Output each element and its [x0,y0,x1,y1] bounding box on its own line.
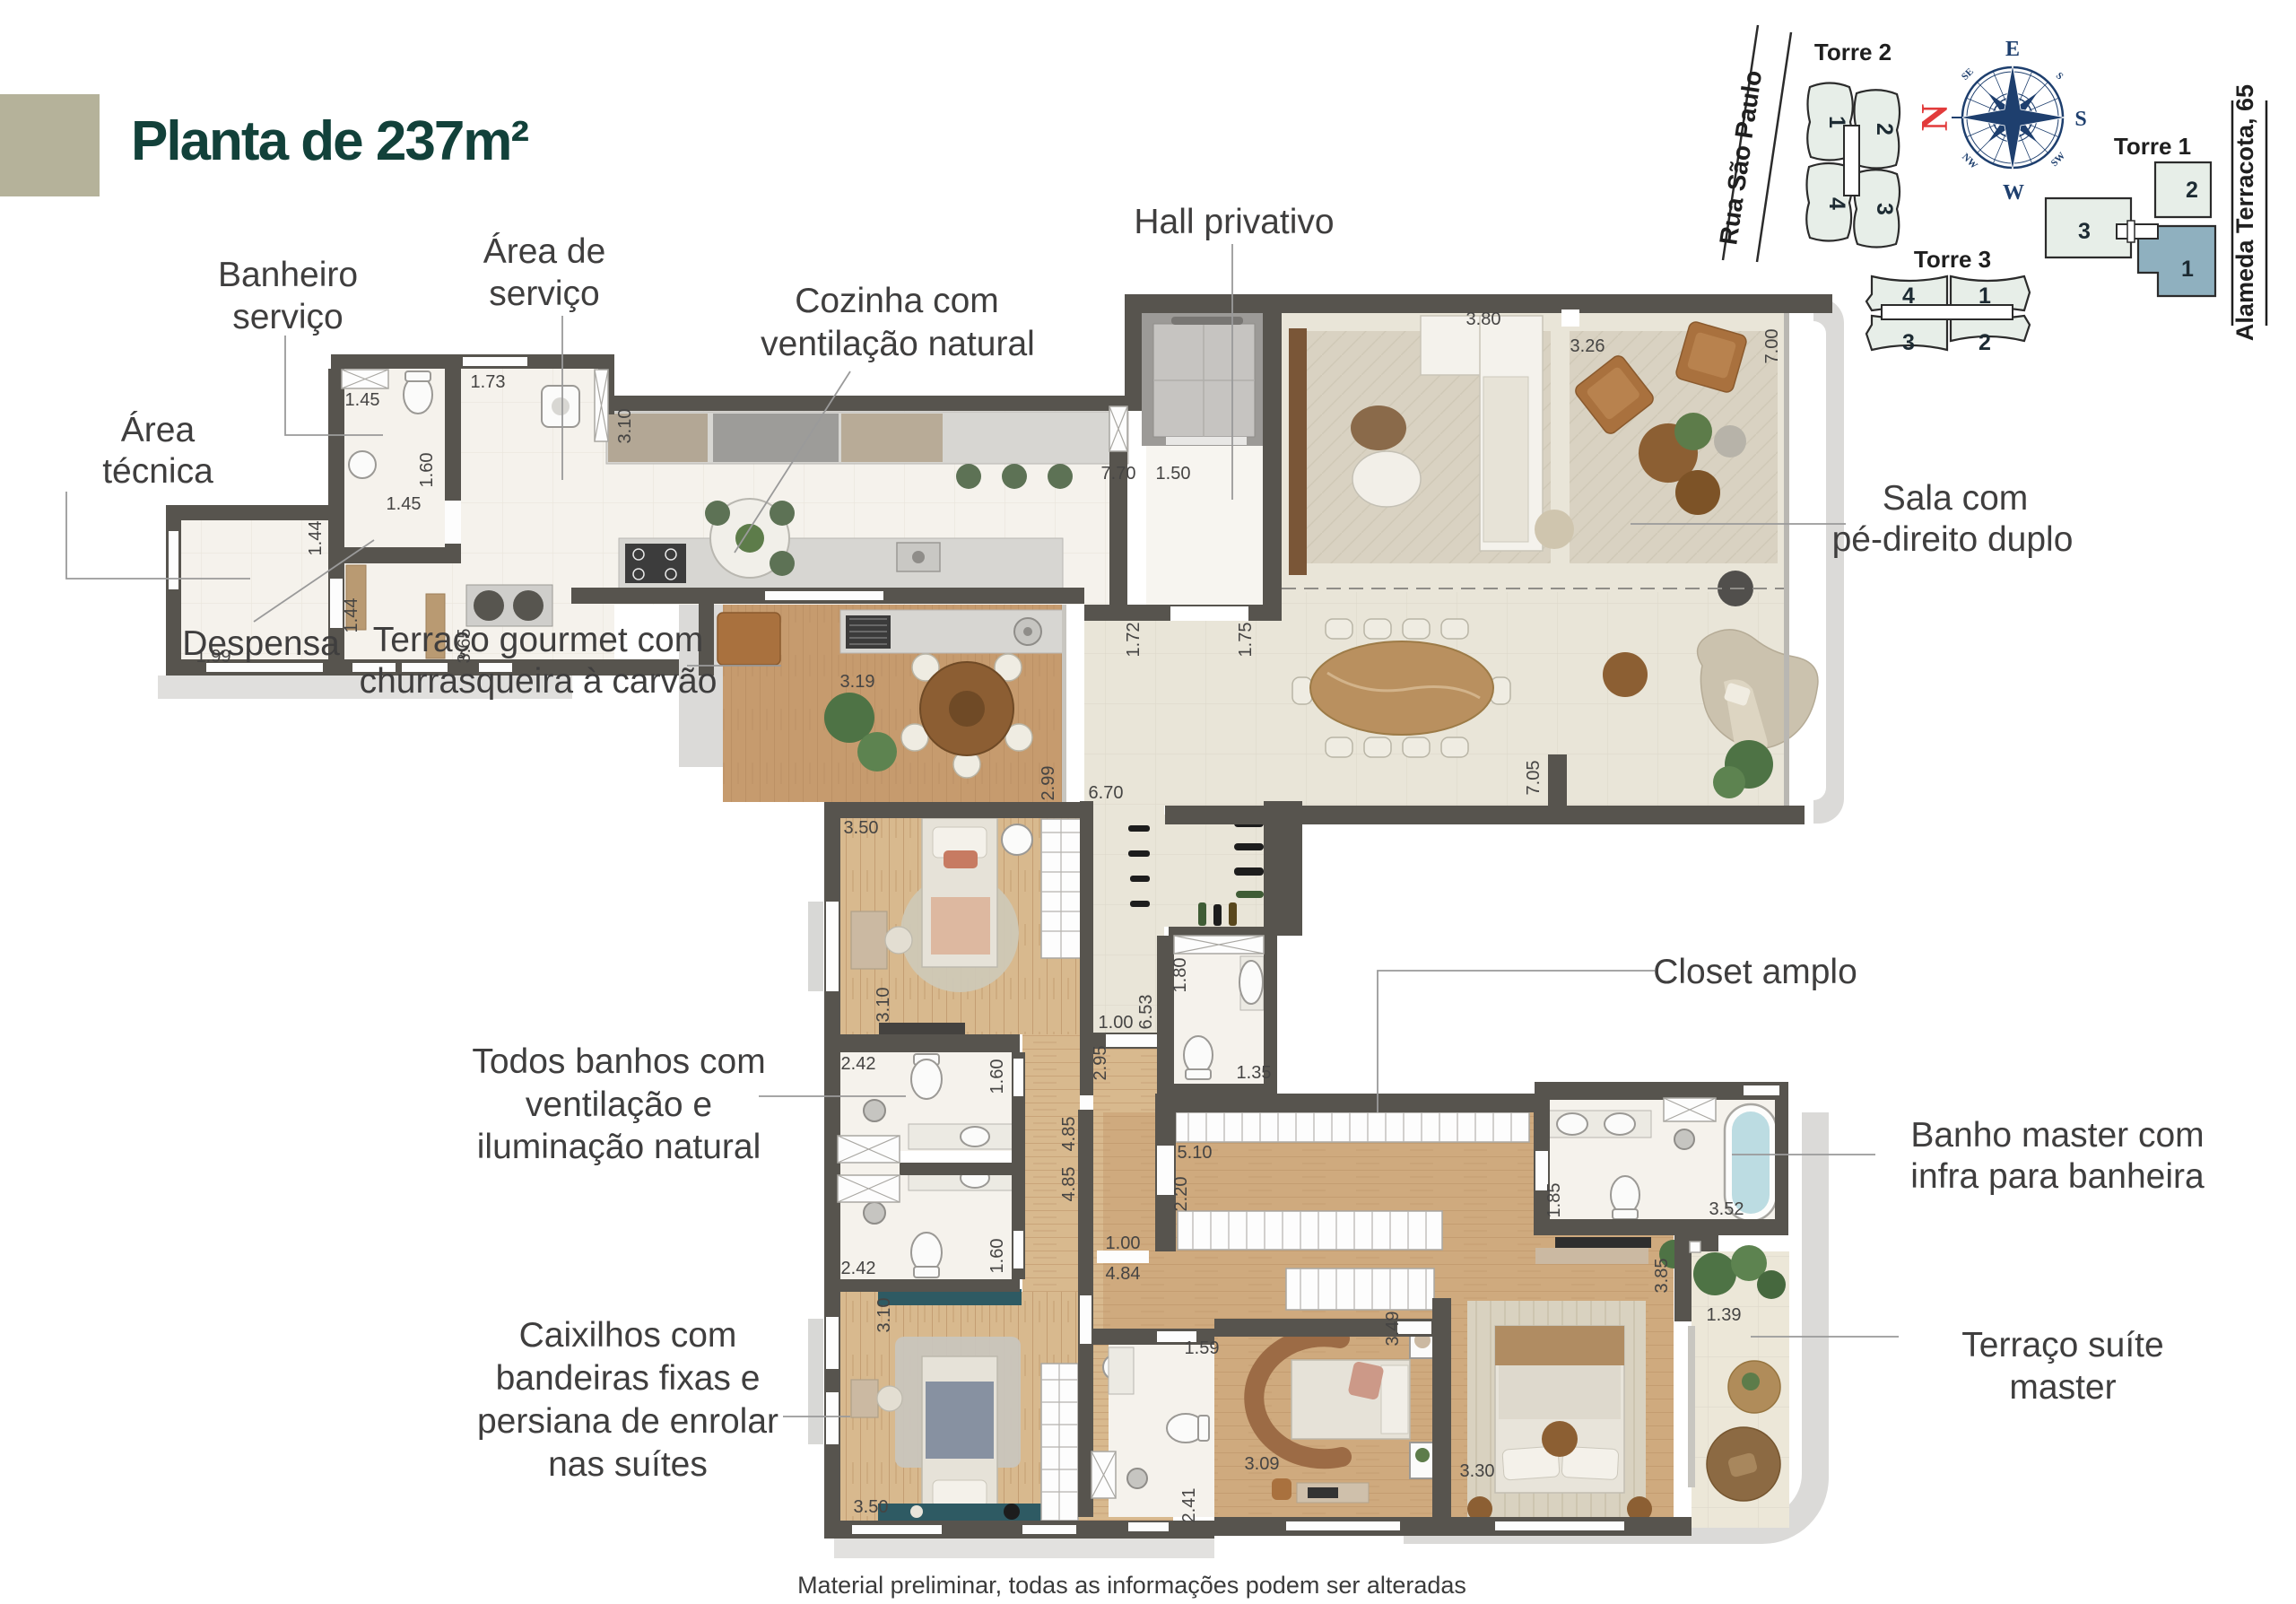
svg-text:6.70: 6.70 [1089,783,1124,803]
svg-text:1.60: 1.60 [417,453,437,488]
svg-text:1.59: 1.59 [1185,1338,1220,1358]
svg-text:3.10: 3.10 [874,988,893,1023]
svg-text:1.44: 1.44 [342,598,361,633]
svg-text:1.00: 1.00 [1099,1013,1134,1033]
svg-text:Torre 2: Torre 2 [1814,39,1892,65]
svg-text:1: 1 [2181,257,2194,282]
svg-text:bandeiras fixas e: bandeiras fixas e [496,1359,761,1398]
svg-text:3.50: 3.50 [854,1497,889,1517]
svg-text:serviço: serviço [232,298,344,336]
svg-text:Material preliminar, todas as: Material preliminar, todas as informaçõe… [797,1572,1466,1599]
svg-text:1.75: 1.75 [1236,623,1256,658]
svg-text:S: S [2074,108,2086,131]
svg-text:churrasqueira à carvão: churrasqueira à carvão [360,662,717,701]
svg-text:Área de: Área de [483,232,606,271]
svg-text:1.35: 1.35 [1237,1063,1272,1083]
svg-text:2.20: 2.20 [1171,1177,1191,1212]
svg-text:1.60: 1.60 [987,1059,1007,1094]
svg-text:ventilação e: ventilação e [526,1085,712,1124]
svg-text:1.00: 1.00 [1106,1234,1141,1253]
svg-text:Planta de 237m²: Planta de 237m² [131,110,528,172]
svg-text:3.50: 3.50 [844,818,879,838]
svg-text:1.72: 1.72 [1124,623,1144,658]
svg-text:serviço: serviço [489,275,600,313]
svg-text:3: 3 [2078,219,2091,244]
svg-text:7.05: 7.05 [1524,761,1544,796]
svg-text:1: 1 [1824,116,1849,128]
svg-text:3.52: 3.52 [1709,1199,1744,1219]
svg-text:1.45: 1.45 [387,494,422,514]
svg-text:3.09: 3.09 [1245,1454,1280,1474]
svg-text:Closet amplo: Closet amplo [1653,953,1857,991]
svg-text:Terraço suíte: Terraço suíte [1961,1326,2163,1364]
svg-text:3.10: 3.10 [615,409,635,444]
svg-text:1.39: 1.39 [1707,1305,1742,1325]
svg-text:4.85: 4.85 [1059,1167,1079,1202]
svg-text:3.30: 3.30 [1460,1461,1495,1481]
svg-text:1.85: 1.85 [1544,1183,1564,1218]
svg-text:Área: Área [121,411,196,449]
svg-text:7.00: 7.00 [1762,329,1782,364]
svg-text:2.41: 2.41 [1179,1488,1199,1523]
svg-text:1.73: 1.73 [471,372,506,392]
svg-text:Despensa: Despensa [182,624,340,663]
svg-text:1.45: 1.45 [345,390,380,410]
svg-text:Cozinha com: Cozinha com [795,282,999,320]
svg-text:4: 4 [1824,197,1849,210]
svg-text:3: 3 [1872,203,1897,215]
svg-text:persiana de enrolar: persiana de enrolar [477,1402,778,1441]
svg-text:3.19: 3.19 [840,672,875,692]
svg-text:3.49: 3.49 [1383,1312,1403,1347]
svg-text:2.95: 2.95 [1091,1046,1110,1081]
svg-text:1: 1 [1979,283,1991,309]
svg-text:iluminação natural: iluminação natural [477,1128,761,1166]
svg-text:2.42: 2.42 [841,1054,876,1074]
svg-text:3.85: 3.85 [1652,1259,1672,1294]
svg-text:2: 2 [1872,123,1897,135]
svg-text:4.85: 4.85 [1059,1117,1079,1152]
svg-text:1.80: 1.80 [1170,958,1190,993]
svg-text:Sala com: Sala com [1883,479,2029,518]
svg-text:7.70: 7.70 [1101,464,1136,484]
svg-text:master: master [2009,1368,2116,1407]
svg-text:5.10: 5.10 [1178,1143,1213,1163]
svg-text:E: E [2005,38,2020,61]
svg-text:Hall privativo: Hall privativo [1134,203,1334,241]
svg-text:Banho master com: Banho master com [1910,1116,2204,1155]
svg-text:2.99: 2.99 [1039,766,1058,801]
svg-text:Banheiro: Banheiro [218,256,358,294]
svg-text:2: 2 [1979,330,1991,355]
svg-text:N: N [1915,104,1956,131]
svg-text:Todos banhos com: Todos banhos com [472,1042,765,1081]
svg-text:2.42: 2.42 [841,1259,876,1278]
svg-text:ventilação natural: ventilação natural [761,325,1035,363]
svg-text:Caixilhos com: Caixilhos com [519,1316,737,1355]
svg-text:Alameda Terracota, 65: Alameda Terracota, 65 [2231,84,2258,341]
svg-text:3.26: 3.26 [1570,336,1605,356]
svg-text:6.53: 6.53 [1136,995,1156,1030]
svg-text:1.50: 1.50 [1156,464,1191,484]
svg-text:3.80: 3.80 [1466,309,1501,329]
svg-text:técnica: técnica [102,452,213,491]
svg-text:infra para banheira: infra para banheira [1910,1157,2205,1196]
svg-text:Terraço gourmet com: Terraço gourmet com [373,621,703,659]
svg-text:3.10: 3.10 [874,1298,894,1333]
svg-text:Torre 3: Torre 3 [1914,246,1991,273]
svg-text:1.60: 1.60 [987,1239,1007,1274]
svg-text:pé-direito duplo: pé-direito duplo [1832,520,2074,559]
svg-text:3: 3 [1902,330,1915,355]
svg-text:4.84: 4.84 [1106,1264,1141,1284]
svg-text:W: W [2003,181,2024,205]
svg-text:4: 4 [1902,283,1915,309]
svg-text:nas suítes: nas suítes [548,1445,708,1484]
svg-text:Torre 1: Torre 1 [2114,133,2191,160]
svg-text:2: 2 [2186,178,2198,203]
svg-text:1.44: 1.44 [306,521,326,556]
